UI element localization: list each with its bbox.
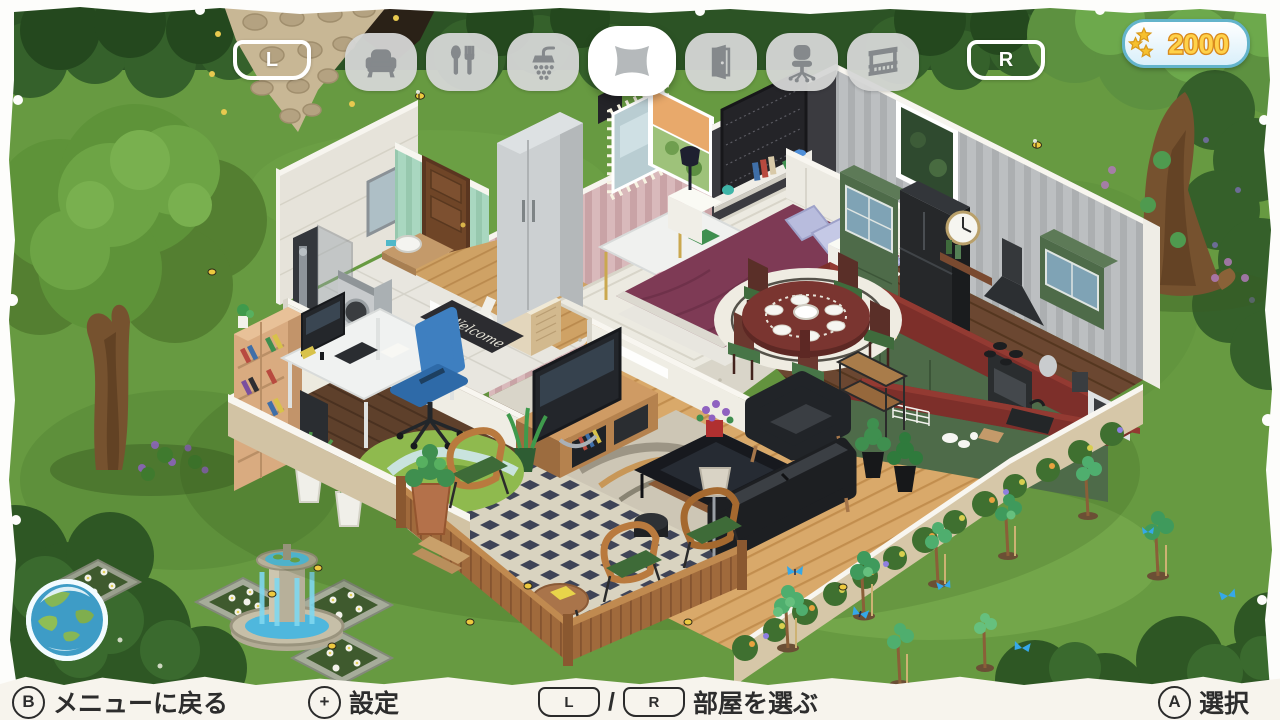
flower-pot xyxy=(706,420,723,437)
kettle xyxy=(1039,355,1057,377)
settings-label: 設定 xyxy=(349,684,399,720)
r-shoulder-label: R xyxy=(999,49,1013,72)
settings-hint[interactable]: + 設定 xyxy=(308,684,399,720)
armchair-icon xyxy=(360,41,402,83)
select-label: 選択 xyxy=(1199,684,1249,720)
dining-table xyxy=(742,281,870,358)
room-select-hint[interactable]: L / R 部屋を選ぶ xyxy=(538,684,818,720)
porch-icon xyxy=(862,41,904,83)
l-shoulder-button[interactable]: L xyxy=(233,40,311,80)
room-select-label: 部屋を選ぶ xyxy=(693,684,818,720)
coffee-maker xyxy=(1072,372,1088,392)
l-button-icon: L xyxy=(538,687,600,717)
house-scene: Welcome xyxy=(0,0,1280,720)
category-hallway[interactable] xyxy=(685,33,757,91)
stars-icon xyxy=(1129,28,1152,56)
cutlery-icon xyxy=(441,41,483,83)
room-category-bar xyxy=(345,28,919,96)
l-shoulder-label: L xyxy=(266,49,278,72)
r-button-icon: R xyxy=(623,687,685,717)
pillow-icon xyxy=(606,35,658,87)
category-bathroom[interactable] xyxy=(507,33,579,91)
category-office[interactable] xyxy=(766,33,838,91)
shower-icon xyxy=(522,41,564,83)
category-patio[interactable] xyxy=(847,33,919,91)
globe-icon xyxy=(24,577,110,663)
category-bedroom[interactable] xyxy=(588,26,676,96)
wardrobe xyxy=(497,112,583,327)
category-dining-room[interactable] xyxy=(426,33,498,91)
door-icon xyxy=(700,41,742,83)
separator: / xyxy=(608,688,615,717)
office-chair-icon xyxy=(781,41,823,83)
back-label: メニューに戻る xyxy=(53,684,228,720)
currency-amount: 2000 xyxy=(1168,28,1229,59)
game-screen: Welcome xyxy=(0,0,1280,720)
select-hint[interactable]: A 選択 xyxy=(1158,684,1249,720)
currency-badge: 2000 xyxy=(1122,19,1250,68)
r-shoulder-button[interactable]: R xyxy=(967,40,1045,80)
back-hint[interactable]: B メニューに戻る xyxy=(12,684,228,720)
a-button-icon: A xyxy=(1158,686,1191,719)
category-living-room[interactable] xyxy=(345,33,417,91)
world-map-button[interactable] xyxy=(24,577,110,663)
b-button-icon: B xyxy=(12,686,45,719)
plus-button-icon: + xyxy=(308,686,341,719)
